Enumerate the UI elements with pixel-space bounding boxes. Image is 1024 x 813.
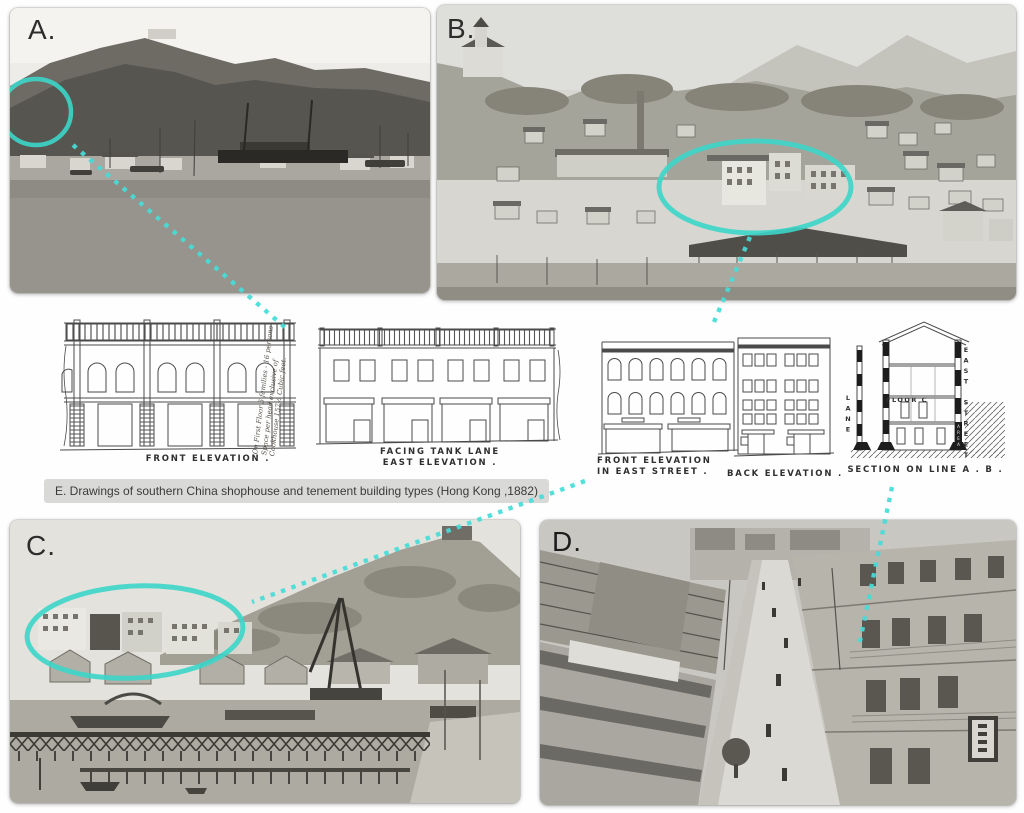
panel-label-b: B.	[447, 13, 475, 45]
drawing-front-elevation-east-street	[594, 336, 742, 458]
panel-label-c: C.	[26, 530, 56, 562]
photo-b-image	[437, 5, 1016, 300]
drawing-front-elevation-label: FRONT ELEVATION .	[108, 454, 308, 465]
photo-panel-d	[540, 520, 1016, 805]
drawing-section-label: SECTION ON LINE A . B .	[833, 465, 1018, 476]
photo-panel-c	[10, 520, 520, 803]
photo-panel-b	[437, 5, 1016, 300]
drawing-section	[843, 310, 1013, 460]
section-area-label: AREA	[956, 424, 961, 448]
photo-a-image	[10, 8, 430, 293]
caption-e: E. Drawings of southern China shophouse …	[44, 479, 549, 503]
drawing-back-elevation	[730, 334, 838, 458]
photo-d-image	[540, 520, 1016, 805]
drawing-east-elevation	[312, 320, 562, 448]
photo-c-image	[10, 520, 520, 803]
photo-panel-a	[10, 8, 430, 293]
section-floor-c-label: FLOOR C	[886, 396, 928, 404]
drawing-east-elevation-label: FACING TANK LANE EAST ELEVATION .	[335, 447, 545, 468]
section-lane-label: LANE	[844, 394, 852, 436]
panel-label-d: D.	[552, 526, 582, 558]
figure-page: A.	[0, 0, 1024, 813]
chimney	[637, 91, 644, 153]
section-east-street-label: EAST STREET	[962, 346, 970, 462]
panel-label-a: A.	[28, 14, 56, 46]
summit-building	[442, 526, 472, 540]
